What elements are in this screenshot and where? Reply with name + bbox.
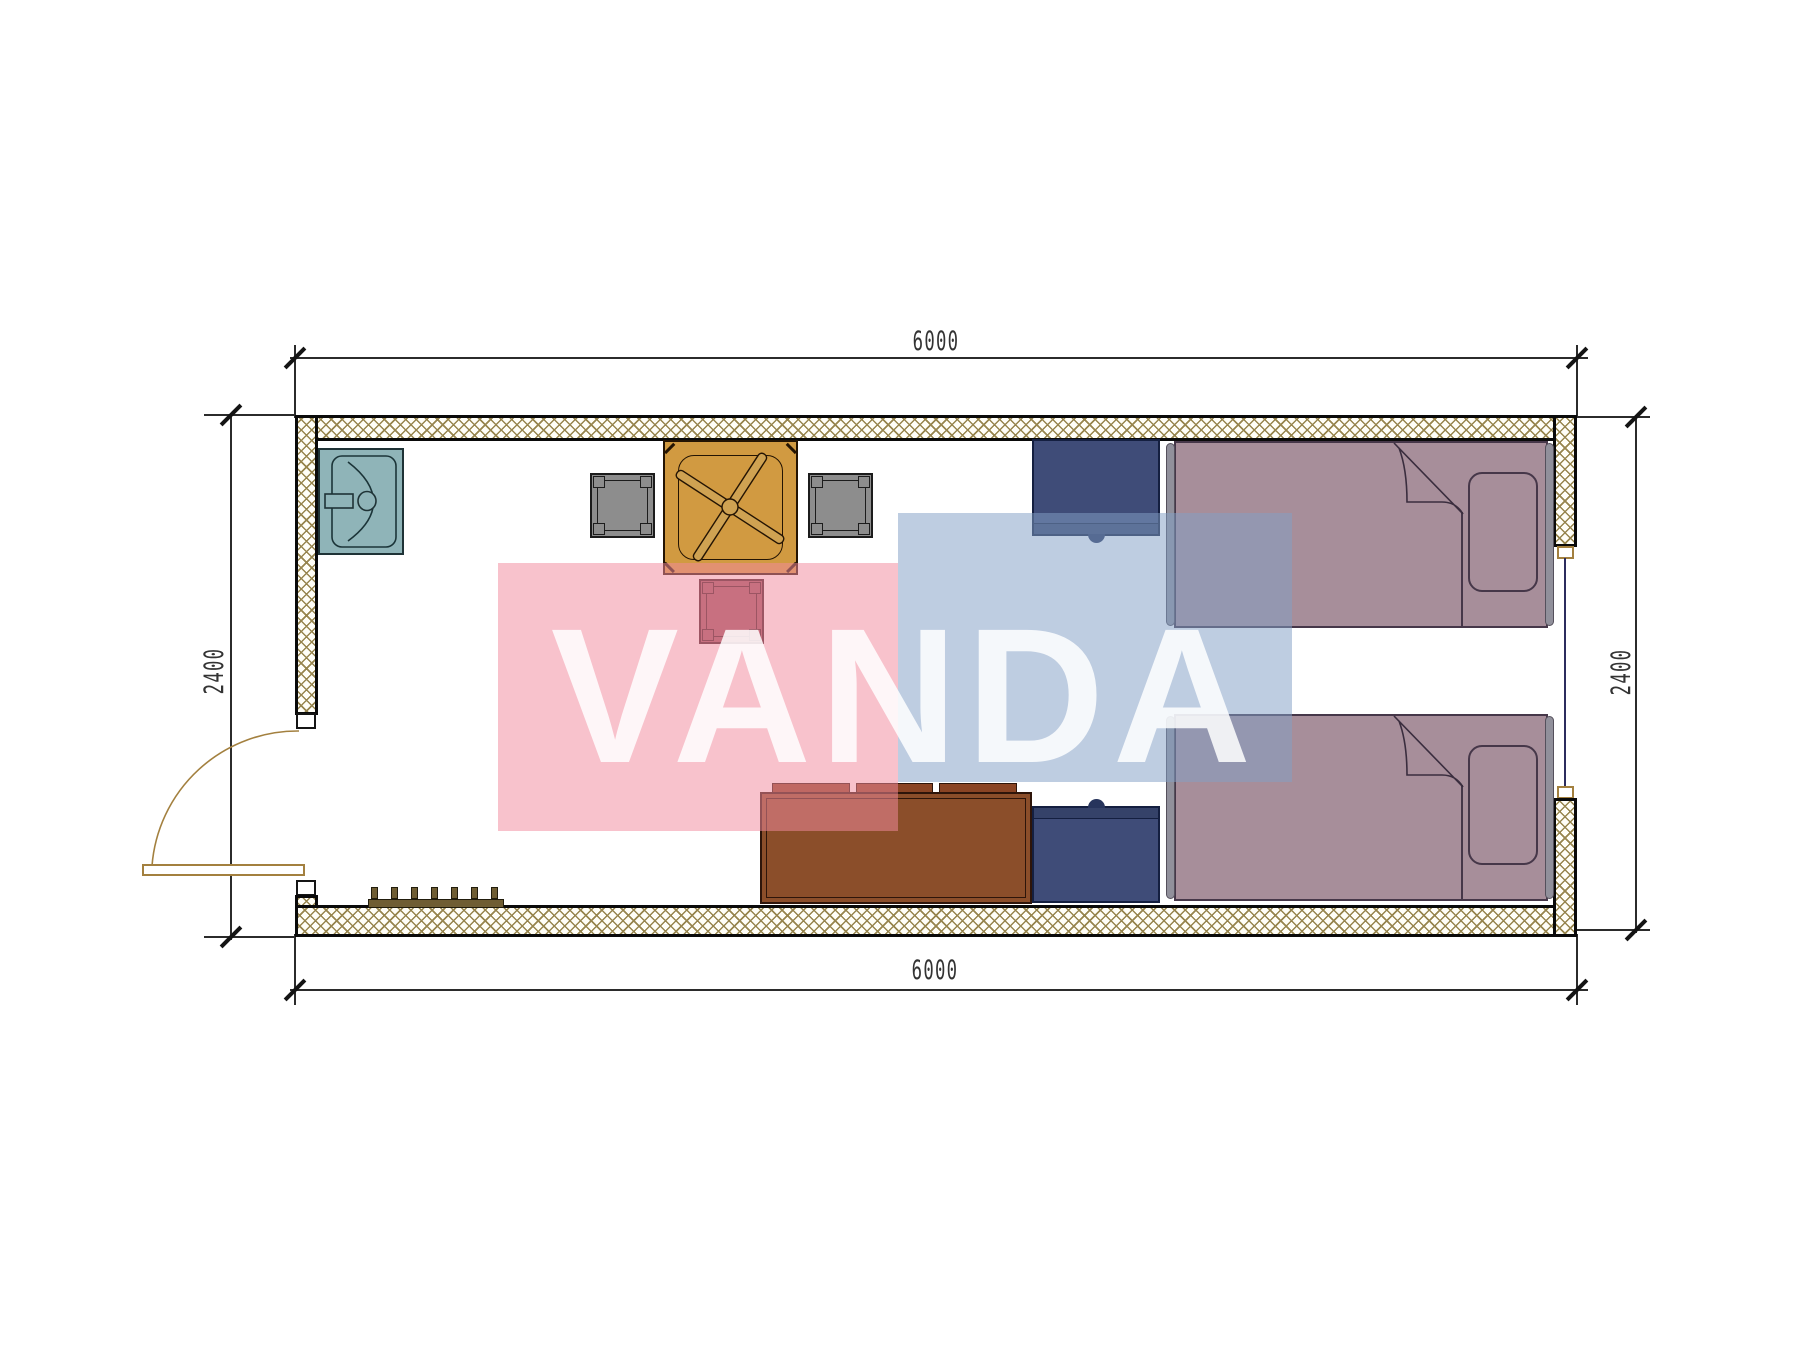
dim-ext-bottom-left (294, 934, 296, 1005)
stool-leg (858, 476, 870, 488)
coat-rack (368, 887, 504, 908)
stool-gray-right (808, 473, 873, 538)
wall-bottom (295, 905, 1577, 937)
door-jamb-lower (296, 880, 316, 896)
sink (318, 448, 404, 555)
door-swing-arc (140, 718, 310, 878)
wall-top (295, 415, 1577, 441)
table (663, 440, 798, 575)
wall-left (295, 415, 318, 715)
stool-leg (640, 476, 652, 488)
watermark-text: VANDA (450, 585, 1360, 805)
stool-leg (858, 523, 870, 535)
coat-hook (411, 887, 418, 899)
dim-ext-left-top (204, 414, 296, 416)
nightstand-drawer (1034, 808, 1158, 819)
coat-hook (491, 887, 498, 899)
coat-hook (371, 887, 378, 899)
coat-hook (431, 887, 438, 899)
dim-line-top (290, 357, 1588, 359)
dim-line-bottom (290, 989, 1588, 991)
coat-hook (451, 887, 458, 899)
coat-rack-bar (368, 899, 504, 908)
dim-label-left: 2400 (198, 627, 230, 714)
wall-right-lower (1553, 798, 1577, 937)
dim-label-top: 6000 (888, 325, 984, 357)
window-glass-line (1564, 558, 1566, 788)
dim-label-bottom: 6000 (887, 954, 983, 986)
dim-ext-left-bottom (204, 936, 296, 938)
coat-hook (391, 887, 398, 899)
stool-leg (593, 523, 605, 535)
nightstand-bottom (1032, 806, 1160, 903)
dim-label-right: 2400 (1605, 628, 1637, 715)
stool-leg (640, 523, 652, 535)
stool-leg (811, 476, 823, 488)
stool-leg (811, 523, 823, 535)
ceiling-fan-icon (665, 442, 796, 573)
coat-hook (471, 887, 478, 899)
stool-leg (593, 476, 605, 488)
dim-ext-bottom-right (1576, 934, 1578, 1005)
floor-plan-canvas: 6000 6000 2400 2400 (0, 0, 1800, 1350)
wall-right-upper (1553, 415, 1577, 547)
stool-gray-left (590, 473, 655, 538)
